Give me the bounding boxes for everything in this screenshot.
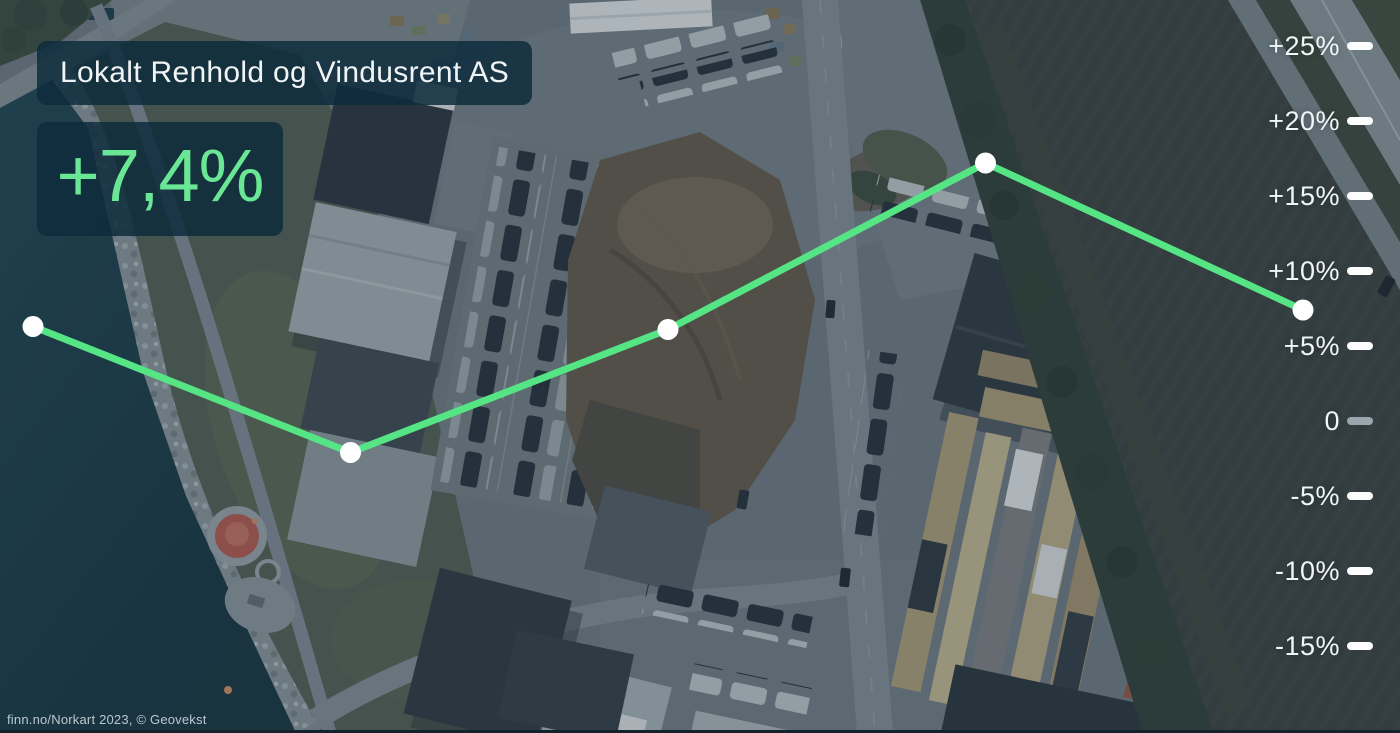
map-tint-overlay (0, 0, 1400, 733)
map-attribution: finn.no/Norkart 2023, © Geovekst (7, 712, 207, 727)
value-change-box: +7,4% (37, 122, 283, 236)
aerial-map (0, 0, 1400, 733)
company-name-box: Lokalt Renhold og Vindusrent AS (37, 41, 532, 105)
value-change: +7,4% (57, 139, 264, 219)
company-value-map-visualization: +25%+20%+15%+10%+5%0-5%-10%-15% Lokalt R… (0, 0, 1400, 733)
company-name: Lokalt Renhold og Vindusrent AS (60, 56, 509, 90)
